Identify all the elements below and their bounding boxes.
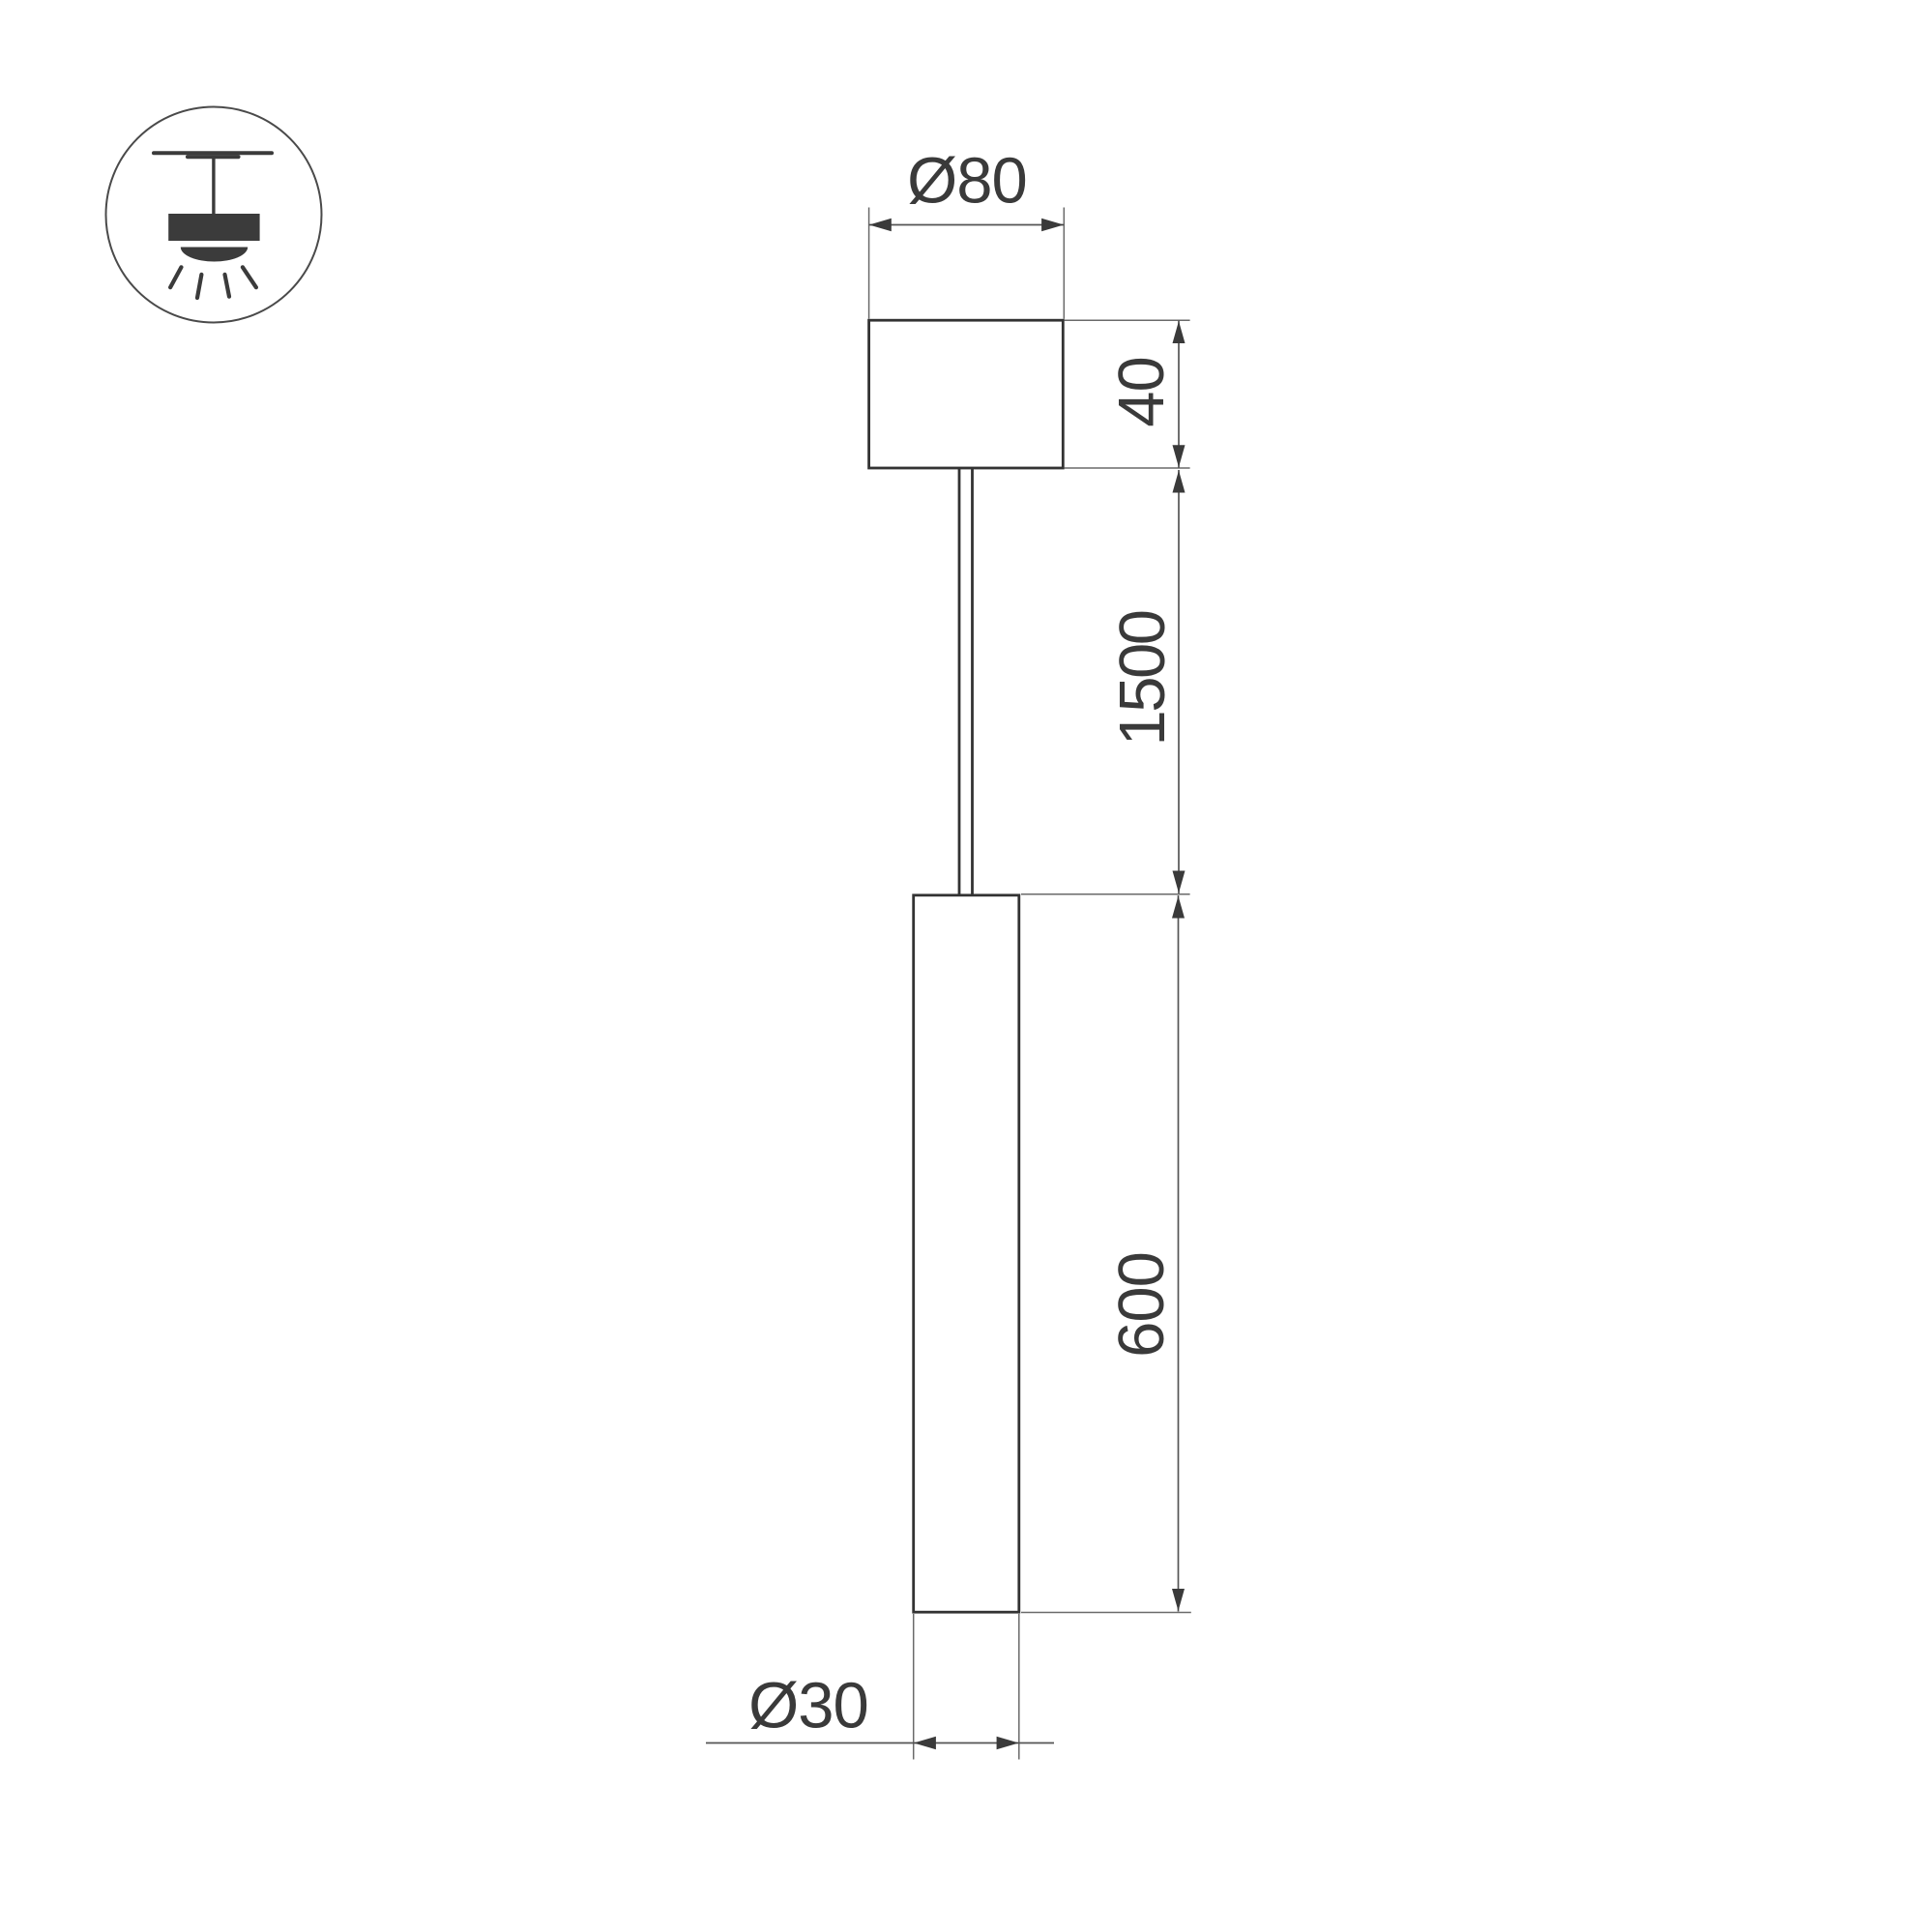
svg-text:600: 600 — [1105, 1252, 1178, 1358]
svg-text:40: 40 — [1105, 357, 1178, 427]
svg-text:Ø80: Ø80 — [907, 145, 1027, 218]
svg-text:1500: 1500 — [1106, 611, 1179, 746]
svg-text:Ø30: Ø30 — [748, 1670, 868, 1742]
